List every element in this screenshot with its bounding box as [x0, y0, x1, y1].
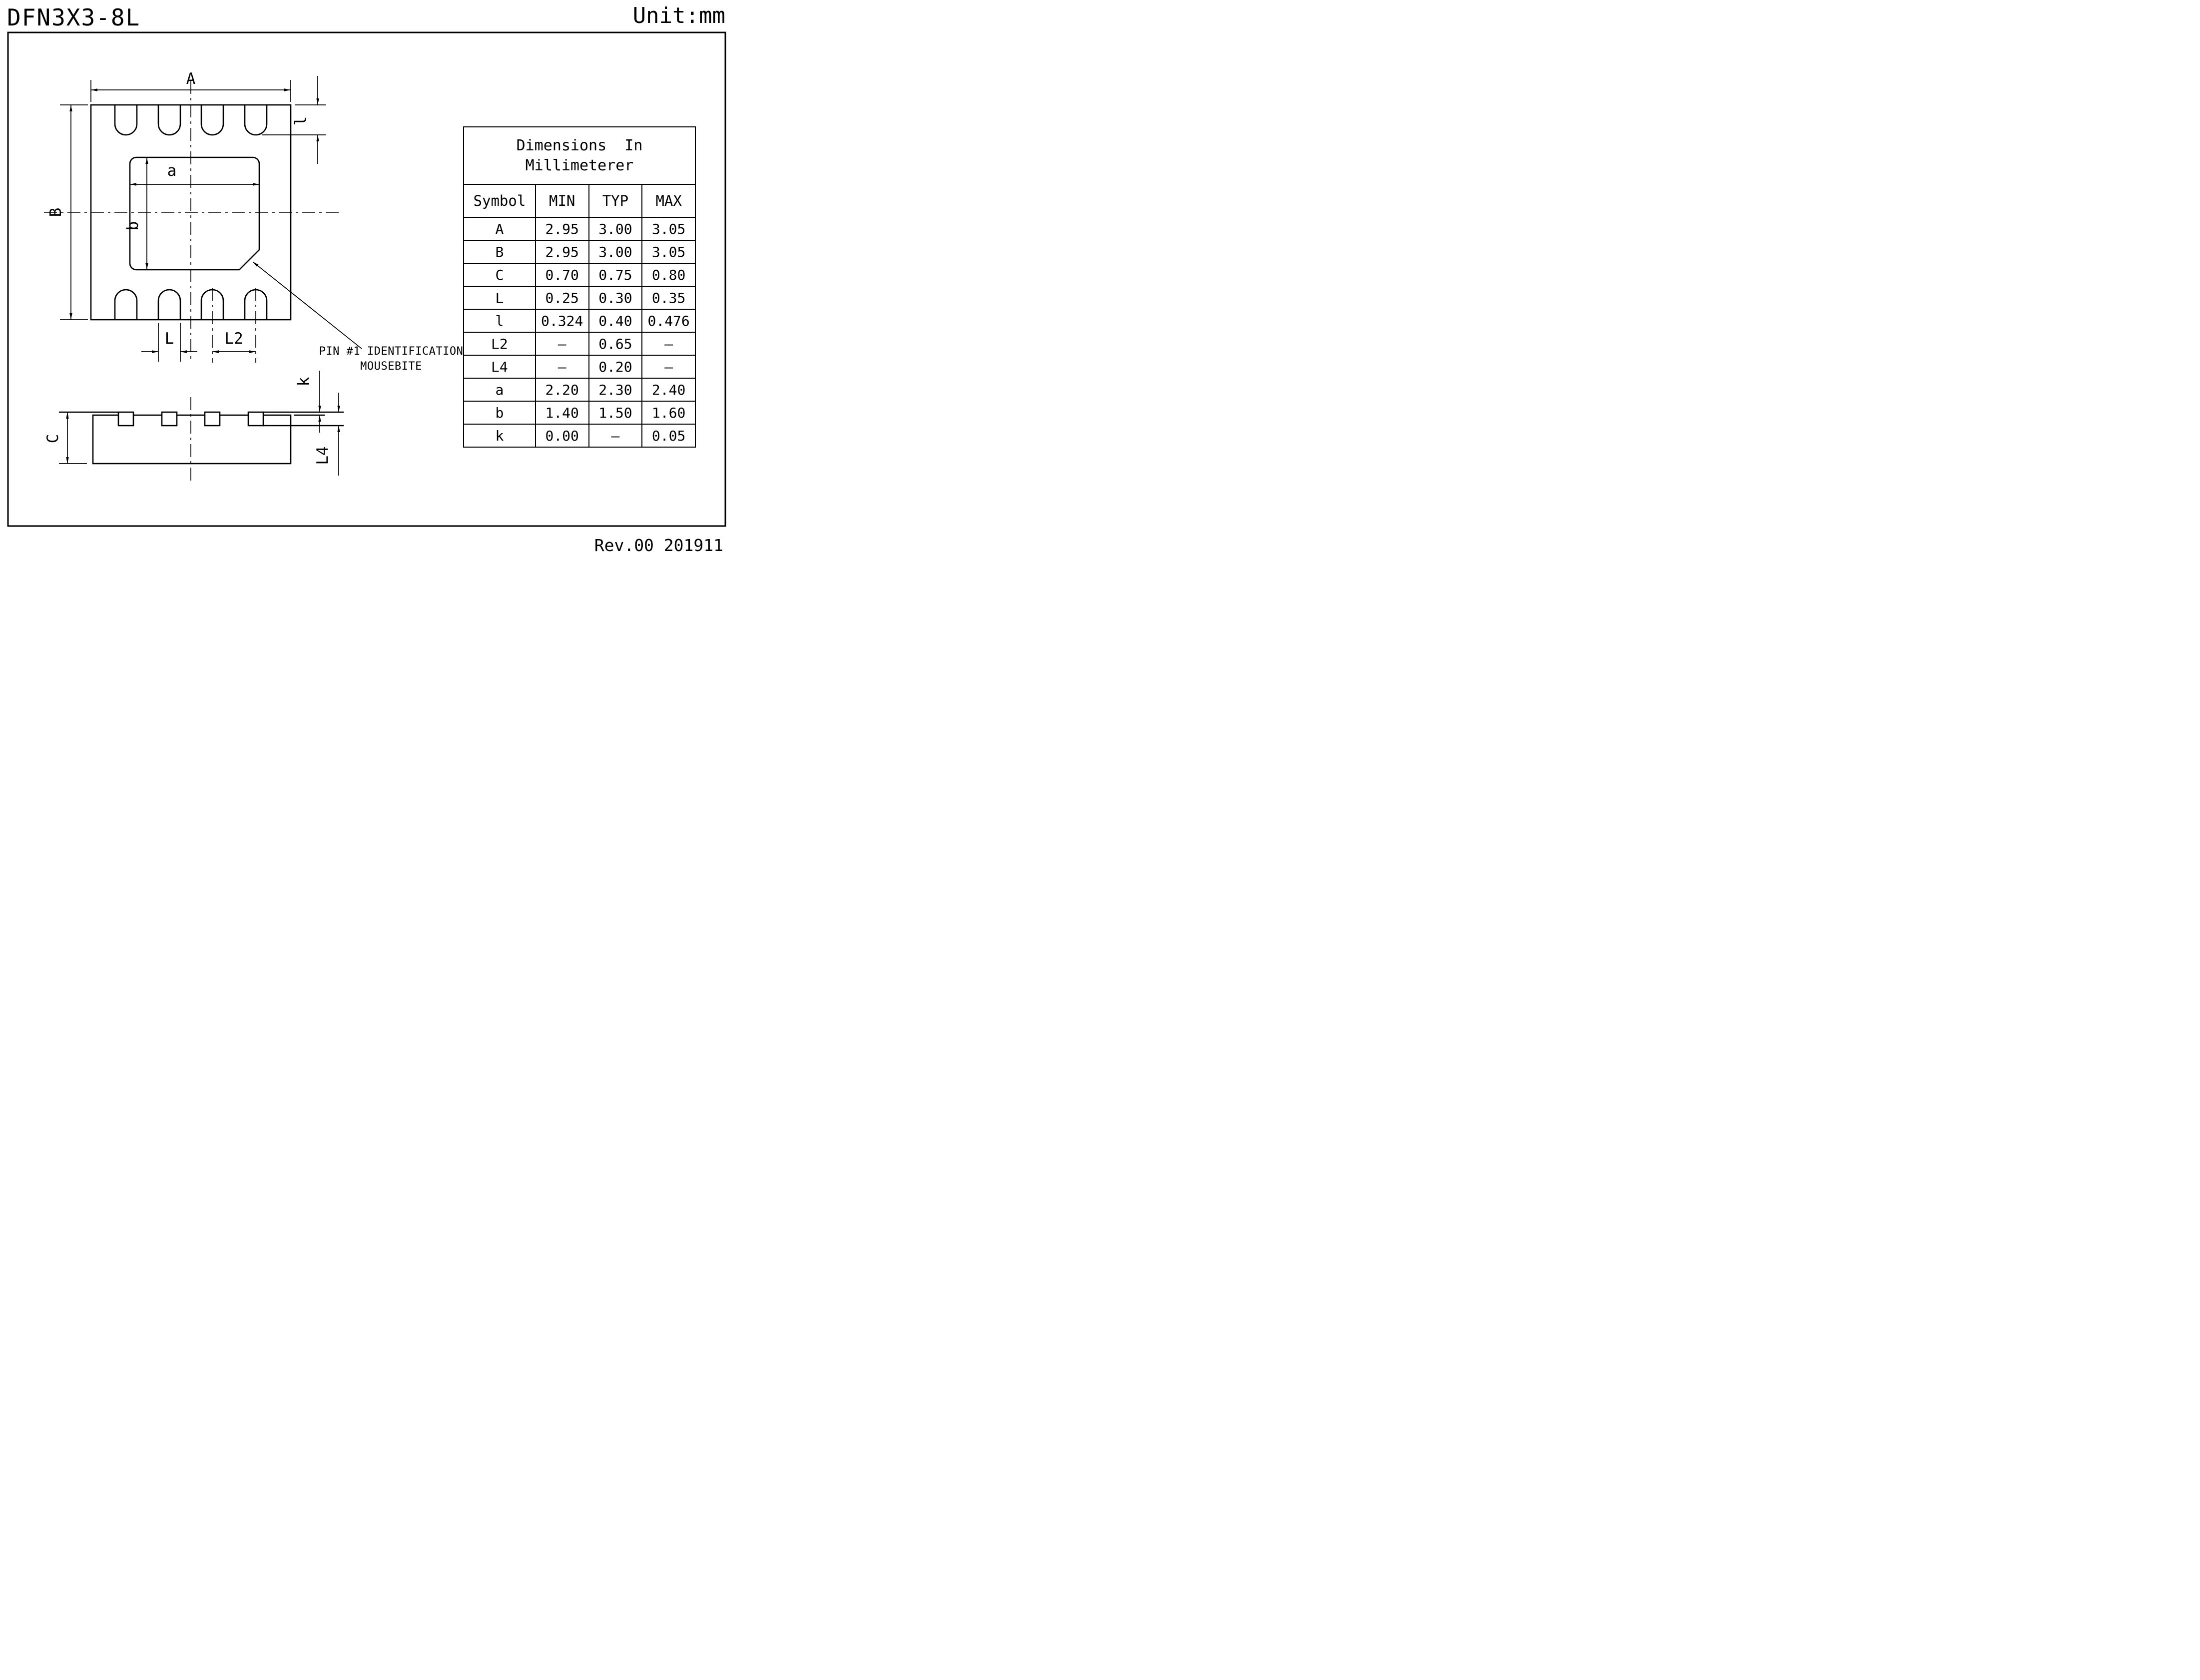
cell-min: 2.95 [536, 217, 589, 240]
pin1-leader-arrow [253, 262, 362, 349]
dim-a: a [130, 162, 259, 184]
col-header-min: MIN [536, 184, 589, 217]
dim-l: l [262, 76, 326, 164]
cell-max: 3.05 [642, 240, 695, 263]
cell-min: 0.70 [536, 263, 589, 286]
dim-L2: L2 [212, 330, 256, 352]
cell-max: – [642, 332, 695, 355]
cell-symbol: l [464, 309, 536, 332]
dim-label-k: k [295, 377, 313, 386]
pin1-note-line2: MOUSEBITE [360, 360, 422, 373]
cell-max: 0.476 [642, 309, 695, 332]
cell-typ: 0.75 [589, 263, 642, 286]
cell-min: – [536, 332, 589, 355]
table-row: a 2.20 2.30 2.40 [464, 378, 695, 401]
dim-label-b: b [124, 221, 142, 231]
col-header-symbol: Symbol [464, 184, 536, 217]
cell-max: 1.60 [642, 401, 695, 424]
table-title: Dimensions InMillimeterer [464, 127, 695, 184]
dim-label-L: L [165, 330, 174, 348]
cell-min: – [536, 355, 589, 378]
cell-typ: 0.20 [589, 355, 642, 378]
cell-max: 0.80 [642, 263, 695, 286]
table-header-row: Symbol MIN TYP MAX [464, 184, 695, 217]
cell-symbol: C [464, 263, 536, 286]
dim-label-C: C [44, 434, 62, 444]
dim-label-A: A [186, 70, 196, 88]
cell-min: 2.95 [536, 240, 589, 263]
cell-symbol: L2 [464, 332, 536, 355]
table-row: L4 – 0.20 – [464, 355, 695, 378]
table-row: B 2.95 3.00 3.05 [464, 240, 695, 263]
dim-label-L4: L4 [314, 446, 332, 465]
cell-symbol: k [464, 424, 536, 447]
cell-min: 2.20 [536, 378, 589, 401]
cell-min: 0.324 [536, 309, 589, 332]
dim-L: L [141, 323, 197, 362]
table-row: k 0.00 – 0.05 [464, 424, 695, 447]
cell-max: – [642, 355, 695, 378]
cell-max: 2.40 [642, 378, 695, 401]
table-row: A 2.95 3.00 3.05 [464, 217, 695, 240]
datasheet-page: DFN3X3-8L Unit:mm Rev.00 201911 [0, 0, 733, 560]
cell-symbol: A [464, 217, 536, 240]
dim-A: A [91, 70, 291, 102]
dim-k: k [295, 371, 320, 433]
cell-symbol: L4 [464, 355, 536, 378]
cell-typ: 1.50 [589, 401, 642, 424]
cell-symbol: L [464, 286, 536, 309]
dim-C: C [44, 412, 87, 464]
table-row: L 0.25 0.30 0.35 [464, 286, 695, 309]
cell-min: 0.00 [536, 424, 589, 447]
top-view: A B l a b [44, 70, 463, 373]
exposed-pad [130, 157, 259, 270]
cell-typ: 3.00 [589, 217, 642, 240]
cell-min: 1.40 [536, 401, 589, 424]
cell-typ: 3.00 [589, 240, 642, 263]
dim-label-L2: L2 [224, 330, 243, 348]
dim-L4: L4 [314, 393, 339, 476]
col-header-typ: TYP [589, 184, 642, 217]
dim-label-a: a [167, 162, 177, 180]
table-row: b 1.40 1.50 1.60 [464, 401, 695, 424]
cell-max: 0.05 [642, 424, 695, 447]
cell-max: 3.05 [642, 217, 695, 240]
cell-typ: – [589, 424, 642, 447]
table-title-row: Dimensions InMillimeterer [464, 127, 695, 184]
dim-b: b [124, 157, 147, 270]
cell-typ: 2.30 [589, 378, 642, 401]
dim-label-l: l [292, 116, 310, 126]
cell-typ: 0.65 [589, 332, 642, 355]
dim-label-B: B [47, 208, 65, 217]
cell-max: 0.35 [642, 286, 695, 309]
cell-typ: 0.40 [589, 309, 642, 332]
side-view: C k L4 [44, 371, 344, 485]
table-row: l 0.324 0.40 0.476 [464, 309, 695, 332]
cell-symbol: b [464, 401, 536, 424]
table-row: C 0.70 0.75 0.80 [464, 263, 695, 286]
cell-min: 0.25 [536, 286, 589, 309]
cell-symbol: B [464, 240, 536, 263]
cell-typ: 0.30 [589, 286, 642, 309]
col-header-max: MAX [642, 184, 695, 217]
table-row: L2 – 0.65 – [464, 332, 695, 355]
dimensions-table: Dimensions InMillimeterer Symbol MIN TYP… [463, 126, 696, 448]
cell-symbol: a [464, 378, 536, 401]
pin1-note: PIN #1 IDENTIFICATION MOUSEBITE [253, 262, 463, 373]
pin1-note-line1: PIN #1 IDENTIFICATION [319, 345, 464, 358]
